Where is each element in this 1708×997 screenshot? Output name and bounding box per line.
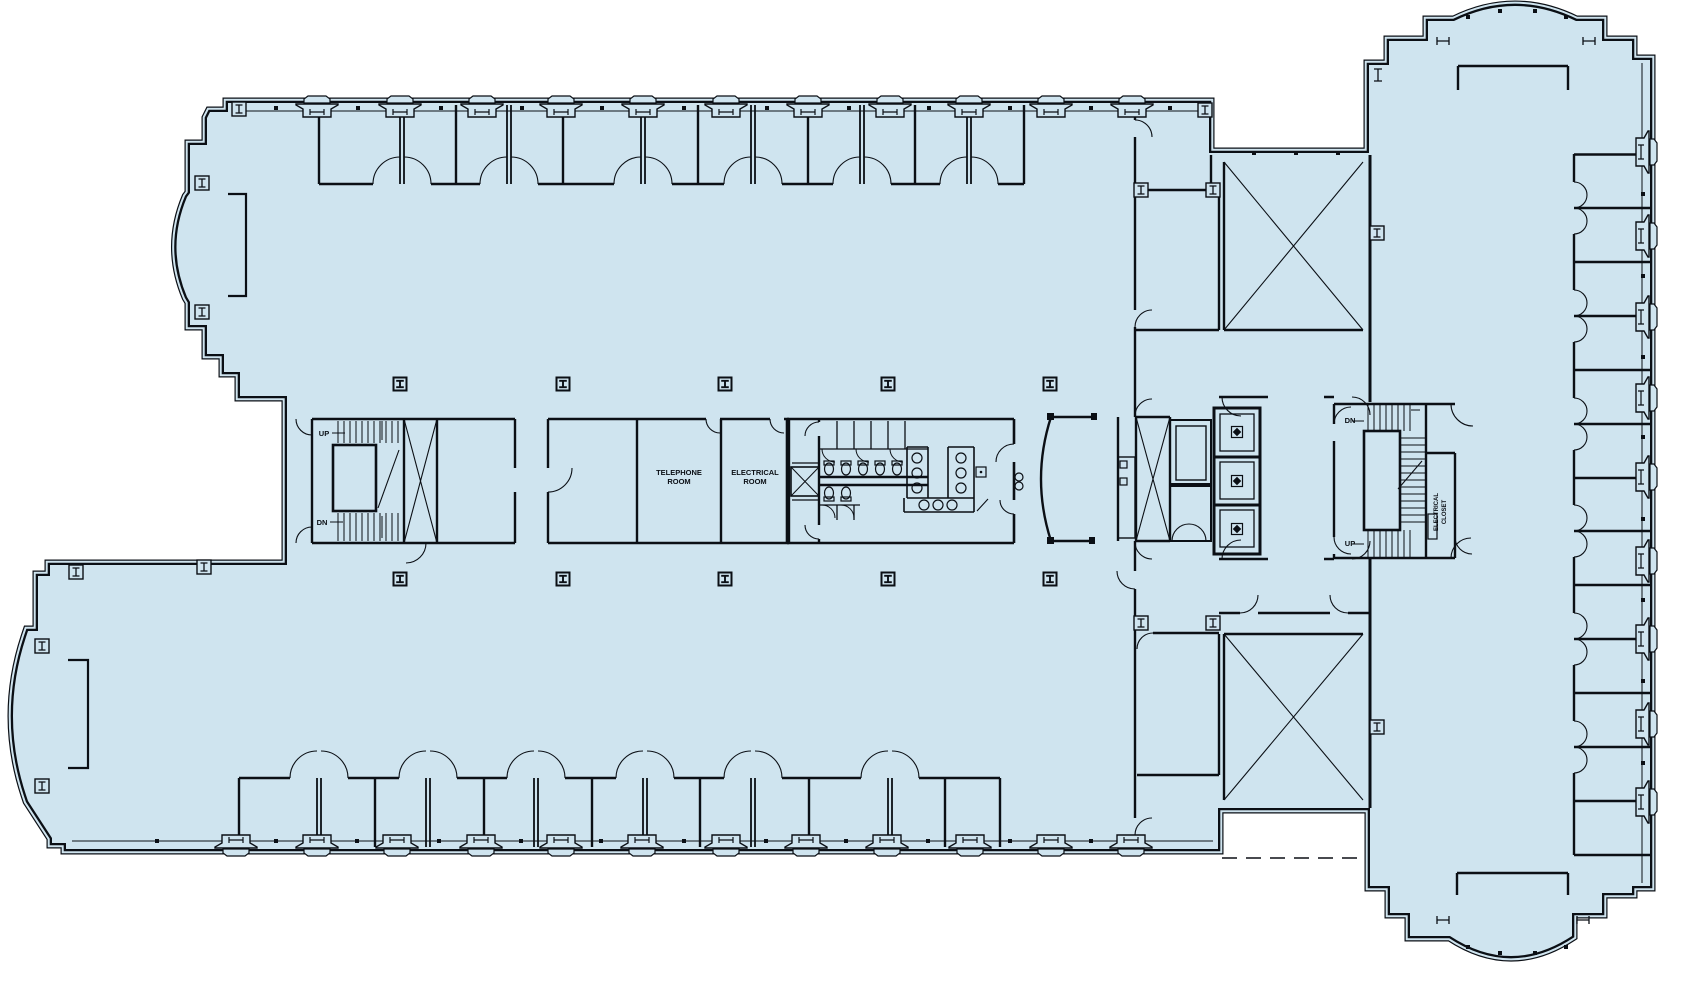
- svg-text:UP: UP: [319, 429, 329, 438]
- svg-text:CLOSET: CLOSET: [1442, 500, 1448, 525]
- svg-text:ROOM: ROOM: [743, 477, 766, 486]
- svg-text:ROOM: ROOM: [667, 477, 690, 486]
- svg-text:DN: DN: [1345, 416, 1356, 425]
- svg-text:ELECTRICAL: ELECTRICAL: [1434, 493, 1440, 531]
- svg-text:DN: DN: [317, 518, 328, 527]
- svg-text:UP: UP: [1345, 539, 1355, 548]
- svg-text:ELECTRICAL: ELECTRICAL: [731, 468, 779, 477]
- svg-text:TELEPHONE: TELEPHONE: [656, 468, 702, 477]
